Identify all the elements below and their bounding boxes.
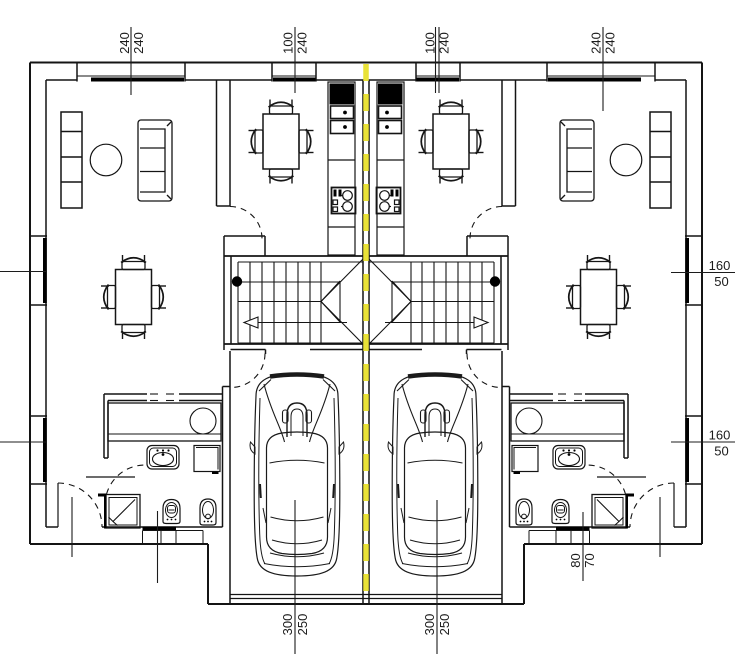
svg-text:160: 160 [709,258,731,273]
svg-text:300: 300 [280,614,295,636]
svg-text:160: 160 [709,428,731,443]
svg-text:50: 50 [714,444,728,459]
svg-text:70: 70 [582,553,597,567]
svg-text:240: 240 [437,32,452,54]
svg-text:300: 300 [422,614,437,636]
svg-text:240: 240 [117,32,132,54]
svg-text:240: 240 [603,32,618,54]
svg-text:50: 50 [714,274,728,289]
svg-text:240: 240 [589,32,604,54]
svg-text:100: 100 [281,32,296,54]
svg-text:240: 240 [295,32,310,54]
svg-text:240: 240 [131,32,146,54]
svg-text:250: 250 [437,614,452,636]
svg-text:100: 100 [423,32,438,54]
svg-text:250: 250 [295,614,310,636]
svg-text:80: 80 [568,553,583,567]
